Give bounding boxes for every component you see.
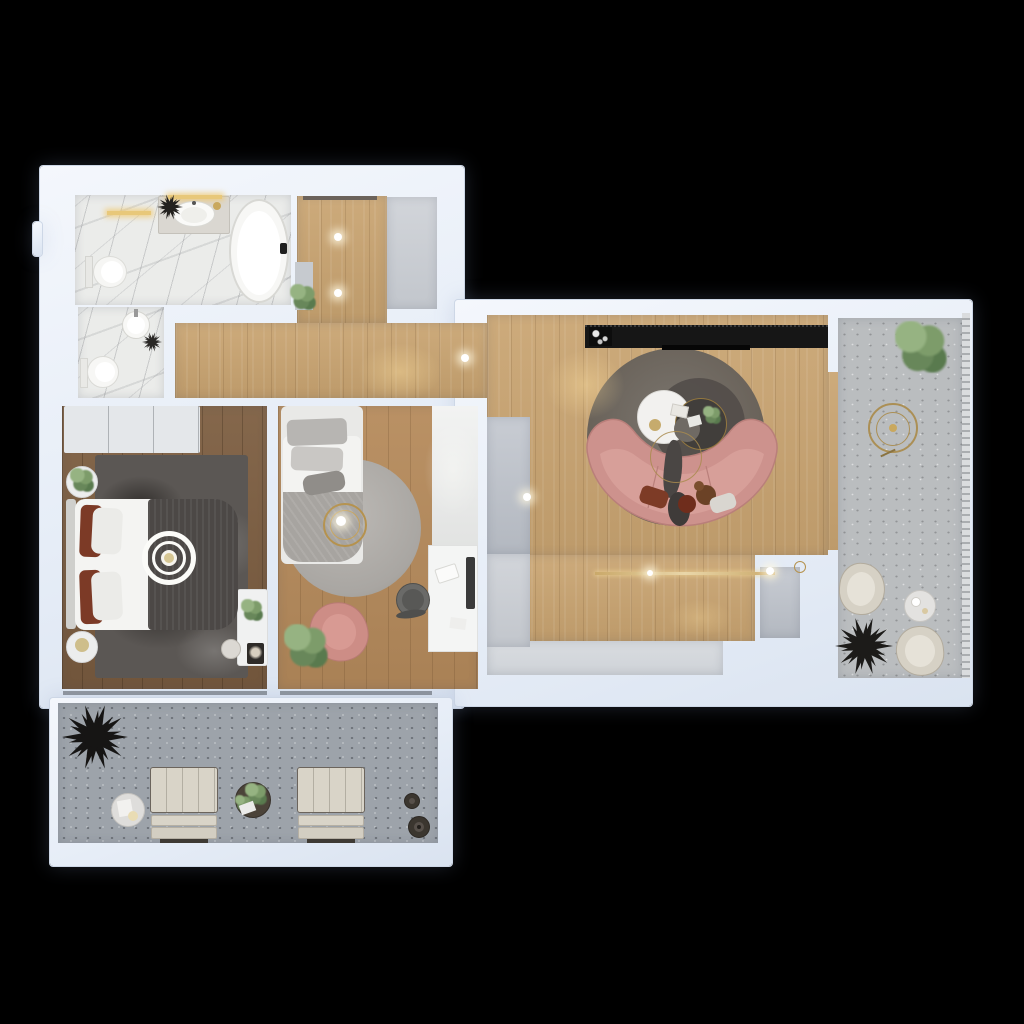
right-balcony-table-decor (922, 608, 928, 614)
wc-toilet-seat (95, 362, 115, 382)
master-window (63, 691, 267, 695)
living-warm-glow-1 (530, 337, 640, 433)
coffee-table-gold-plate (649, 419, 661, 431)
right-balcony-side-table (904, 590, 936, 622)
hallway-ceiling-light-2 (334, 289, 342, 297)
bedroom2-ring-lamp-bulb (336, 516, 346, 526)
bedroom2-window (280, 691, 432, 695)
planter-pot-small-core (409, 798, 415, 804)
tv-screen (662, 345, 750, 350)
entry-closet (387, 197, 437, 309)
pendant-bulb-2 (766, 567, 774, 575)
planter-pot-large-core (417, 825, 421, 829)
vanity-sink-basin (181, 207, 207, 223)
balcony-door-opening (828, 372, 838, 550)
right-balcony-shrub (895, 321, 947, 373)
nightstand-bottom-tray (75, 638, 89, 652)
master-pillow-white-2 (91, 571, 123, 621)
toilet-tank (85, 256, 93, 288)
vanity-faucet (192, 201, 196, 205)
hall-closet-lower (487, 554, 530, 647)
bathtub-basin (237, 211, 281, 295)
bedroom2-ring-lamp-inner (330, 510, 360, 540)
bed2-pillow-2 (291, 446, 344, 472)
bathtub-faucet (280, 243, 287, 254)
hallway-ceiling-light-1 (334, 233, 342, 241)
right-balcony-ring-center (889, 424, 897, 432)
master-pillow-white-1 (91, 507, 123, 555)
bedroom2-window-glow (413, 404, 493, 536)
hall-closet-upper (487, 417, 530, 554)
bedroom2-office-chair-seat (402, 589, 424, 611)
wc-floor (78, 307, 164, 398)
right-balcony-black-plant (835, 617, 893, 675)
bed2-pillow-1 (287, 418, 348, 446)
lounge-chair-1-back (150, 767, 218, 813)
toilet-seat (101, 261, 123, 283)
bottom-balcony-black-palm (62, 704, 128, 770)
floor-plan-image (0, 0, 1024, 1024)
right-balcony-railing (962, 313, 970, 678)
lounge-chair-2-back (297, 767, 365, 813)
utility-inset (760, 567, 800, 638)
lounge-chair-1-seat-b (151, 827, 217, 839)
pendant-bulb-1 (647, 570, 653, 576)
master-wardrobe (64, 406, 200, 453)
master-ceiling-lamp-gold (164, 553, 174, 563)
master-stool (221, 639, 241, 659)
wc-dark-twigs (142, 332, 162, 352)
nightstand-top-plant (70, 468, 94, 492)
corridor-ceiling-light (461, 354, 469, 362)
lounge-chair-2-seat-a (298, 815, 364, 826)
bedroom2-plant (284, 624, 328, 668)
entry-plant (290, 284, 316, 310)
coffee-table-dark-plant (703, 406, 721, 424)
lounge-chair-1-base (160, 839, 208, 843)
master-portrait (247, 643, 264, 664)
entry-door (303, 196, 377, 200)
living-warm-glow-2 (655, 592, 745, 644)
sofa-pillow-red (678, 495, 696, 513)
corridor-warm-glow (342, 332, 458, 412)
wall-notch (33, 222, 42, 256)
arc-floor-lamp-ring (650, 431, 702, 483)
wc-tap (134, 309, 138, 317)
vanity-dark-flowers (157, 194, 183, 220)
lounge-chair-2-seat-b (298, 827, 364, 839)
linear-pendant-light (595, 572, 775, 575)
vanity-gold-decor (213, 202, 221, 210)
lounge-chair-2-base (307, 839, 355, 843)
sofa-teddy-head (694, 481, 704, 491)
wall-led-bar (107, 211, 151, 215)
lounge-chair-1-seat-a (151, 815, 217, 826)
bottom-balcony-candle (128, 811, 138, 821)
living-ceiling-light (523, 493, 531, 501)
bedroom2-desk-paper (449, 617, 466, 630)
living-gold-ring-decor (794, 561, 806, 573)
right-balcony-table-cup (911, 597, 921, 607)
master-dresser-plant (241, 599, 263, 621)
bedroom2-monitor (466, 557, 475, 609)
